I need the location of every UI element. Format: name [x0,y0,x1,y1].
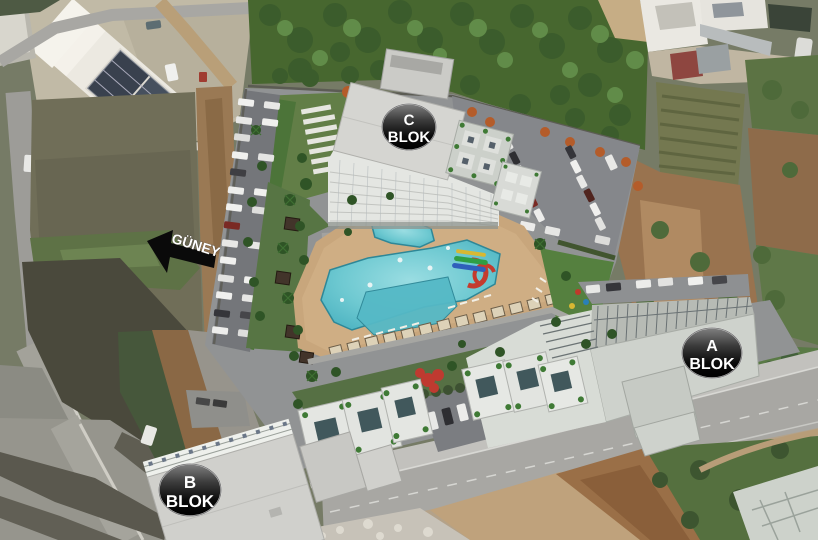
svg-text:BLOK: BLOK [388,129,431,146]
svg-text:C: C [404,112,415,129]
svg-text:BLOK: BLOK [166,492,215,511]
svg-text:BLOK: BLOK [689,356,735,373]
svg-text:B: B [184,473,196,492]
svg-text:A: A [706,338,718,355]
